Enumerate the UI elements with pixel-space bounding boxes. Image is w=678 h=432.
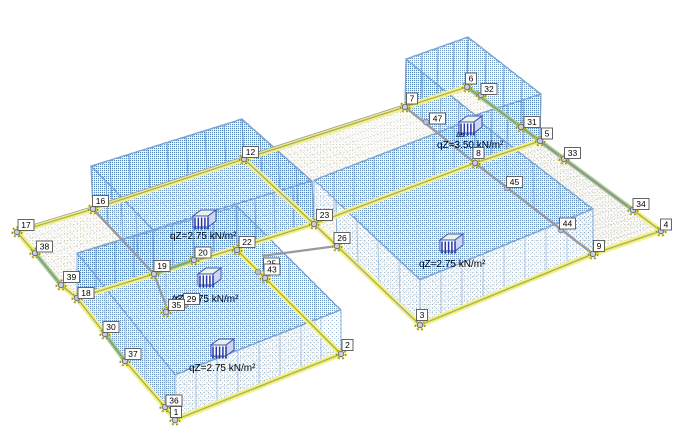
svg-text:17: 17 <box>21 220 31 230</box>
svg-text:30: 30 <box>106 322 116 332</box>
svg-text:9: 9 <box>597 241 602 251</box>
svg-text:22: 22 <box>242 237 252 247</box>
svg-text:5: 5 <box>545 129 550 139</box>
svg-text:18: 18 <box>81 288 91 298</box>
svg-text:38: 38 <box>40 242 50 252</box>
svg-text:34: 34 <box>636 199 646 209</box>
svg-text:qZ=2.75 kN/m²: qZ=2.75 kN/m² <box>189 363 256 374</box>
svg-text:47: 47 <box>433 114 443 124</box>
svg-text:23: 23 <box>320 210 330 220</box>
svg-text:31: 31 <box>527 117 537 127</box>
svg-text:16: 16 <box>96 196 106 206</box>
svg-text:26: 26 <box>337 233 347 243</box>
svg-text:qZ=3.50 kN/m²: qZ=3.50 kN/m² <box>437 140 504 151</box>
svg-text:20: 20 <box>198 248 208 258</box>
svg-text:2: 2 <box>345 340 350 350</box>
svg-text:1: 1 <box>174 407 179 417</box>
svg-text:35: 35 <box>172 300 182 310</box>
svg-text:44: 44 <box>563 219 573 229</box>
svg-text:Δs.: Δs. <box>456 132 466 139</box>
svg-text:12: 12 <box>246 147 256 157</box>
svg-text:8: 8 <box>476 148 481 158</box>
svg-text:7: 7 <box>410 94 415 104</box>
svg-text:37: 37 <box>128 349 138 359</box>
svg-text:29: 29 <box>187 294 197 304</box>
svg-text:45: 45 <box>510 177 520 187</box>
svg-text:3: 3 <box>420 310 425 320</box>
svg-text:43: 43 <box>267 265 277 275</box>
svg-text:qZ=2.75 kN/m²: qZ=2.75 kN/m² <box>170 231 237 242</box>
svg-text:qZ=2.75 kN/m²: qZ=2.75 kN/m² <box>419 259 486 270</box>
svg-text:4: 4 <box>664 220 669 230</box>
svg-text:33: 33 <box>568 148 578 158</box>
svg-text:32: 32 <box>484 84 494 94</box>
svg-text:36: 36 <box>169 396 179 406</box>
svg-text:6: 6 <box>469 74 474 84</box>
svg-text:19: 19 <box>157 261 167 271</box>
svg-text:39: 39 <box>67 272 77 282</box>
